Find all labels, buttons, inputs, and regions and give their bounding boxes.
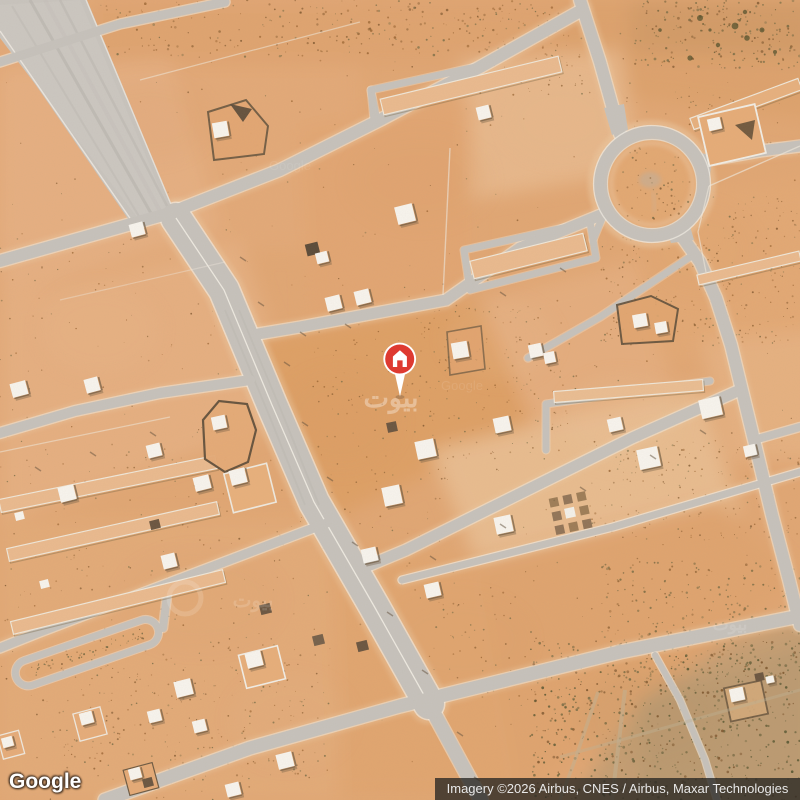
svg-text:Google: Google xyxy=(441,378,483,393)
svg-text:بيوت: بيوت xyxy=(363,383,418,415)
svg-text:بيوت: بيوت xyxy=(233,590,274,613)
svg-text:بيوت: بيوت xyxy=(713,615,748,635)
svg-text:Google: Google xyxy=(269,158,311,173)
